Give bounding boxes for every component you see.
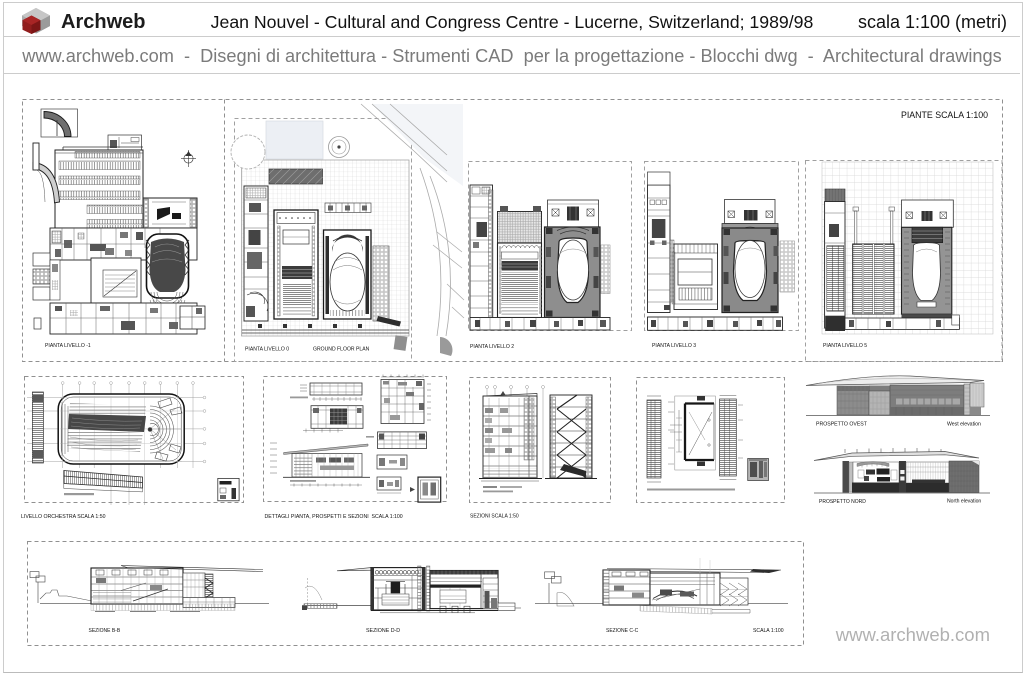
svg-text:PIANTA LIVELLO 5: PIANTA LIVELLO 5 xyxy=(823,343,867,349)
svg-text:www.archweb.com: www.archweb.com xyxy=(835,624,990,645)
svg-text:SEZIONE D-D: SEZIONE D-D xyxy=(366,628,400,634)
svg-text:PIANTA LIVELLO 0: PIANTA LIVELLO 0 xyxy=(245,347,289,353)
svg-text:PROSPETTO OVEST: PROSPETTO OVEST xyxy=(816,422,868,428)
svg-text:SEZIONE C-C: SEZIONE C-C xyxy=(606,628,639,634)
svg-text:PROSPETTO NORD: PROSPETTO NORD xyxy=(819,499,866,505)
svg-text:SEZIONE B-B: SEZIONE B-B xyxy=(89,628,121,634)
svg-text:LIVELLO ORCHESTRA SCALA 1:50: LIVELLO ORCHESTRA SCALA 1:50 xyxy=(21,514,106,520)
svg-text:North elevation: North elevation xyxy=(947,499,981,505)
svg-text:DETTAGLI PIANTA, PROSPETTI E S: DETTAGLI PIANTA, PROSPETTI E SEZIONI SCA… xyxy=(265,514,403,520)
svg-text:PIANTA LIVELLO 2: PIANTA LIVELLO 2 xyxy=(470,344,514,350)
svg-text:PIANTE SCALA 1:100: PIANTE SCALA 1:100 xyxy=(901,110,988,120)
svg-text:PIANTA LIVELLO -1: PIANTA LIVELLO -1 xyxy=(45,343,91,349)
svg-text:SEZIONI SCALA 1:50: SEZIONI SCALA 1:50 xyxy=(470,514,519,520)
svg-text:SCALA 1:100: SCALA 1:100 xyxy=(753,628,784,634)
svg-text:West elevation: West elevation xyxy=(947,422,981,428)
svg-text:PIANTA LIVELLO 3: PIANTA LIVELLO 3 xyxy=(652,343,696,349)
svg-text:GROUND FLOOR PLAN: GROUND FLOOR PLAN xyxy=(313,347,370,353)
